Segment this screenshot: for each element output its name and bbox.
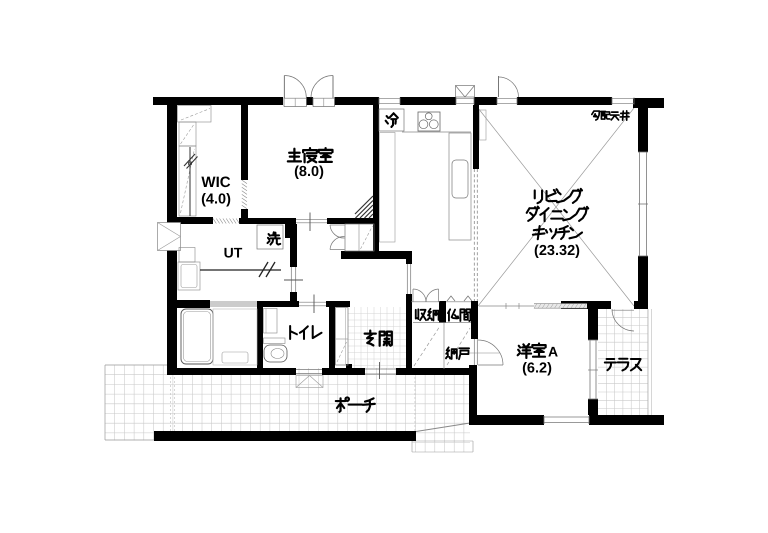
svg-text:WIC: WIC <box>201 174 230 191</box>
svg-text:(8.0): (8.0) <box>294 164 324 180</box>
svg-text:UT: UT <box>224 245 243 261</box>
svg-text:(6.2): (6.2) <box>522 361 552 377</box>
svg-text:(23.32): (23.32) <box>534 243 580 259</box>
svg-text:A: A <box>548 344 558 360</box>
svg-text:(4.0): (4.0) <box>201 192 231 208</box>
